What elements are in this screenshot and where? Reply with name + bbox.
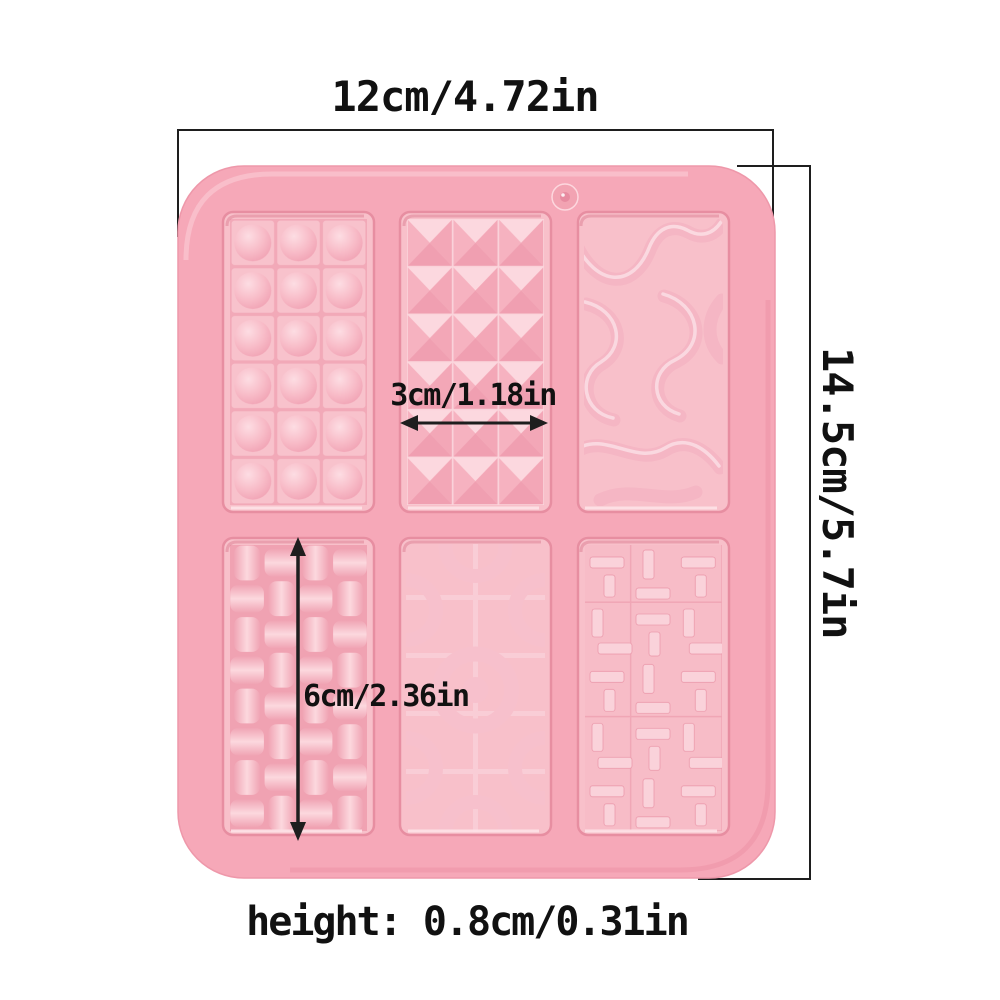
mold-height-label: 14.5cm/5.7in [816, 347, 858, 638]
cavity-width-label: 3cm/1.18in [373, 381, 573, 411]
mold-thickness-label: height: 0.8cm/0.31in [167, 902, 767, 942]
cavity-height-label: 6cm/2.36in [303, 682, 469, 712]
cavity-maze-bars [578, 538, 729, 835]
product-photo: 12cm/4.72in 14.5cm/5.7in 3cm/1.18in 6cm/… [0, 0, 1000, 1000]
cavity-pyramid-facets [400, 212, 551, 512]
cavity-wavy-ribbons [575, 212, 729, 512]
hanging-hole [552, 184, 578, 210]
mold-width-label: 12cm/4.72in [165, 76, 765, 118]
cavity-dome-bubbles [223, 212, 374, 512]
